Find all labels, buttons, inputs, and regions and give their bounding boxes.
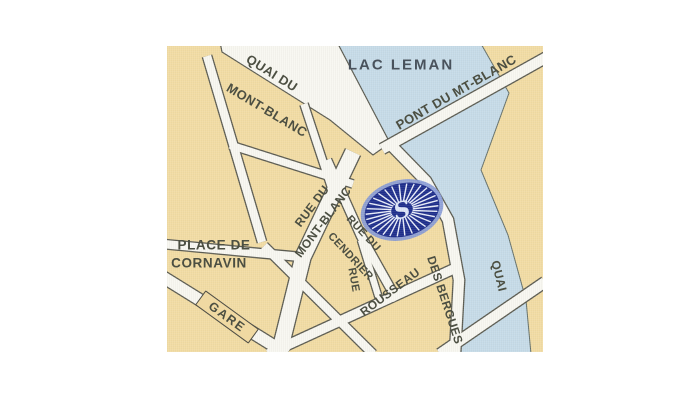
- label-place-de-cornavin-2: CORNAVIN: [171, 256, 247, 270]
- geneva-street-map: S LAC LEMAN QUAI DU MONT-BLANC PONT DU M…: [167, 46, 543, 352]
- label-lac-leman: LAC LEMAN: [348, 58, 454, 73]
- label-place-de-cornavin-1: PLACE DE: [177, 238, 250, 252]
